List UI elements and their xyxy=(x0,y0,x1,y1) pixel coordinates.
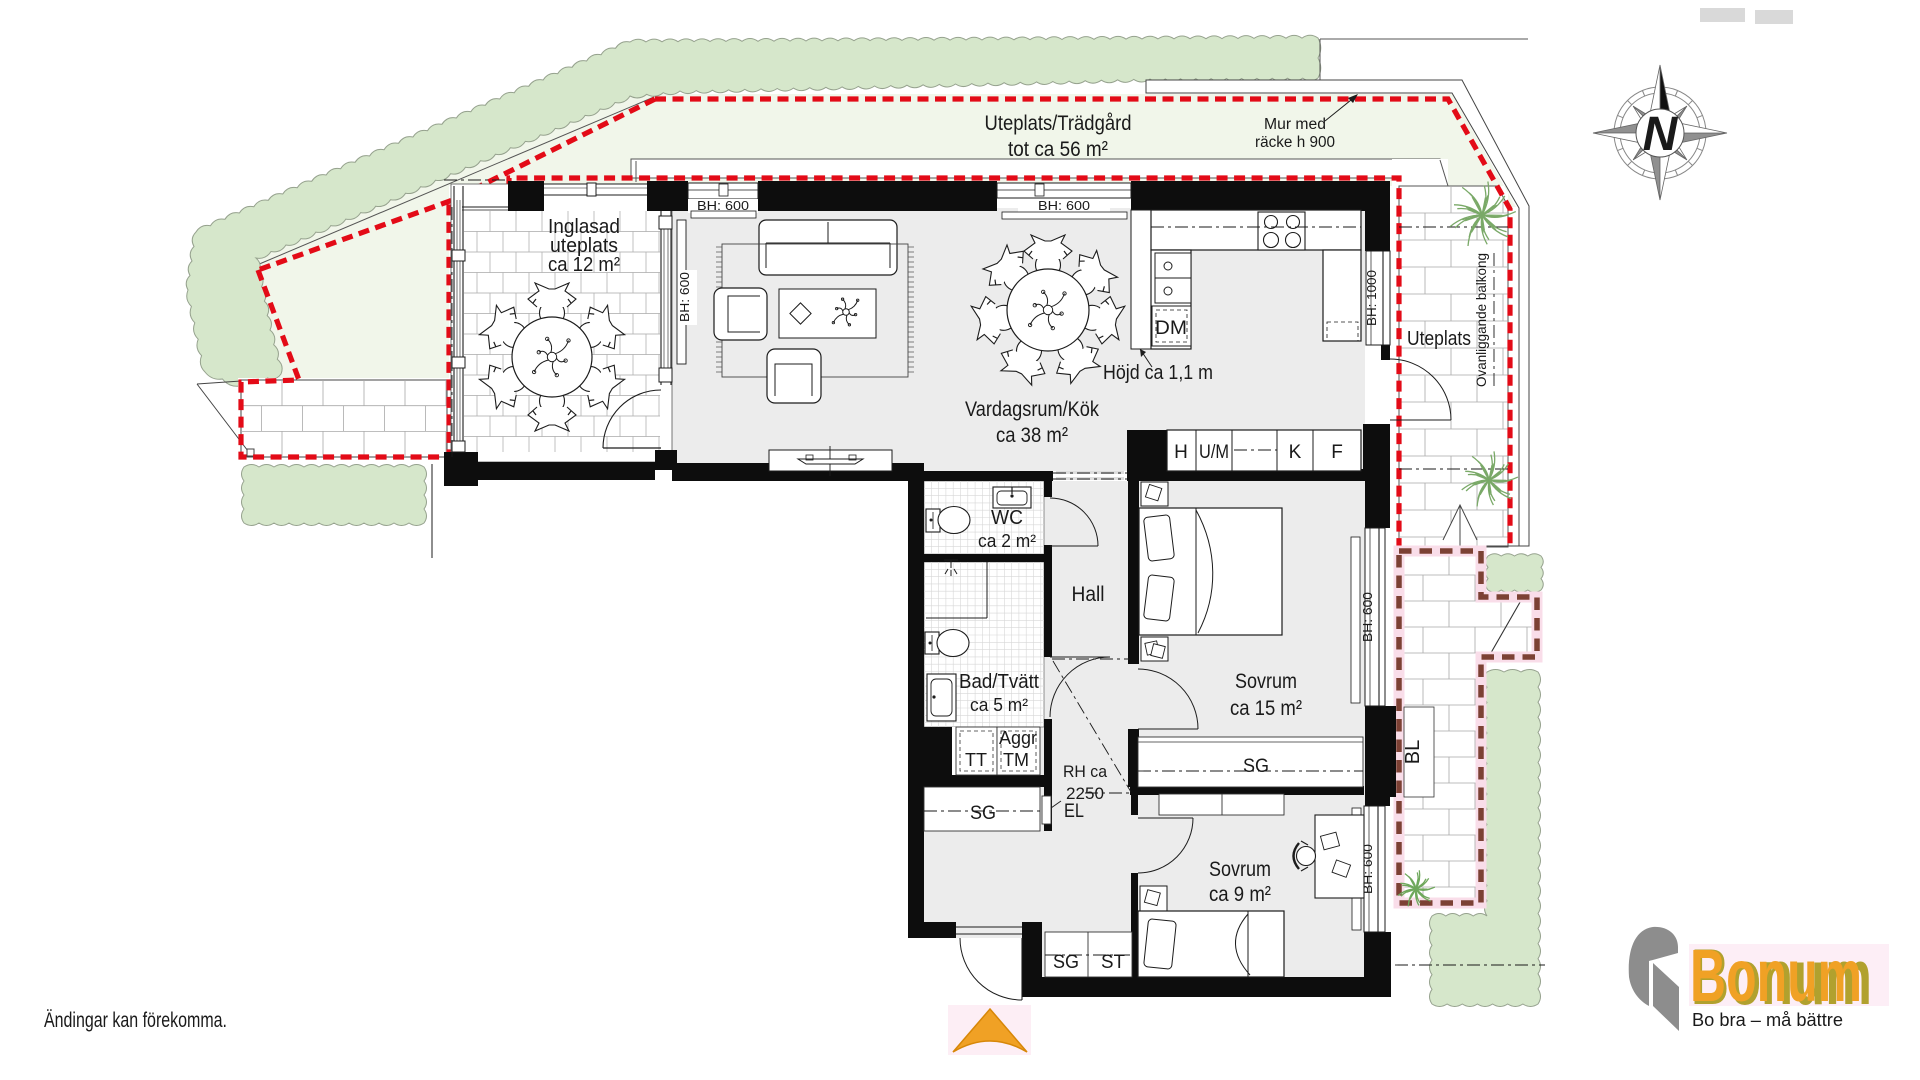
svg-text:Ändingar kan förekomma.: Ändingar kan förekomma. xyxy=(44,1009,227,1032)
svg-text:BH: 600: BH: 600 xyxy=(1038,198,1090,213)
svg-text:ST: ST xyxy=(1101,952,1125,973)
svg-text:H: H xyxy=(1174,442,1188,463)
svg-text:Vardagsrum/Kök: Vardagsrum/Kök xyxy=(965,398,1099,421)
svg-text:BH: 1000: BH: 1000 xyxy=(1365,270,1379,326)
svg-text:K: K xyxy=(1289,442,1302,463)
svg-text:Sovrum: Sovrum xyxy=(1235,670,1297,693)
svg-text:tot ca 56 m²: tot ca 56 m² xyxy=(1008,138,1108,161)
svg-text:Mur med: Mur med xyxy=(1264,116,1326,133)
svg-text:Aggr: Aggr xyxy=(999,728,1037,748)
svg-text:TM: TM xyxy=(1003,750,1029,770)
svg-text:ca 12 m²: ca 12 m² xyxy=(548,254,620,276)
svg-text:Bad/Tvätt: Bad/Tvätt xyxy=(959,671,1039,693)
svg-text:SG: SG xyxy=(1053,952,1079,973)
svg-text:RH ca: RH ca xyxy=(1063,762,1108,781)
svg-text:F: F xyxy=(1331,442,1343,463)
svg-text:BH: 600: BH: 600 xyxy=(1361,592,1375,642)
svg-text:Bonum: Bonum xyxy=(1690,934,1862,1017)
svg-text:ca 15 m²: ca 15 m² xyxy=(1230,697,1302,720)
svg-text:Höjd ca 1,1 m: Höjd ca 1,1 m xyxy=(1103,362,1213,384)
svg-text:BL: BL xyxy=(1402,740,1424,764)
svg-text:DM: DM xyxy=(1155,318,1187,339)
svg-text:ca 9 m²: ca 9 m² xyxy=(1209,883,1271,906)
svg-text:Sovrum: Sovrum xyxy=(1209,858,1271,881)
svg-text:ca 38 m²: ca 38 m² xyxy=(996,424,1068,447)
svg-text:WC: WC xyxy=(991,507,1023,529)
svg-text:Uteplats: Uteplats xyxy=(1407,328,1471,350)
svg-text:SG: SG xyxy=(970,803,996,824)
svg-text:TT: TT xyxy=(965,750,987,770)
svg-text:BH: 600: BH: 600 xyxy=(678,272,692,322)
svg-text:Hall: Hall xyxy=(1072,583,1105,606)
svg-text:EL: EL xyxy=(1064,801,1084,822)
svg-text:SG: SG xyxy=(1243,756,1269,777)
svg-text:ca 2 m²: ca 2 m² xyxy=(978,531,1036,551)
svg-text:U/M: U/M xyxy=(1199,442,1229,463)
svg-text:räcke h 900: räcke h 900 xyxy=(1255,134,1335,151)
svg-text:N: N xyxy=(1643,108,1679,161)
svg-text:ca 5 m²: ca 5 m² xyxy=(970,695,1028,715)
svg-text:Uteplats/Trädgård: Uteplats/Trädgård xyxy=(985,112,1132,135)
svg-text:Ovanliggande balkong: Ovanliggande balkong xyxy=(1474,253,1489,387)
svg-text:Bo bra – må bättre: Bo bra – må bättre xyxy=(1692,1009,1843,1030)
